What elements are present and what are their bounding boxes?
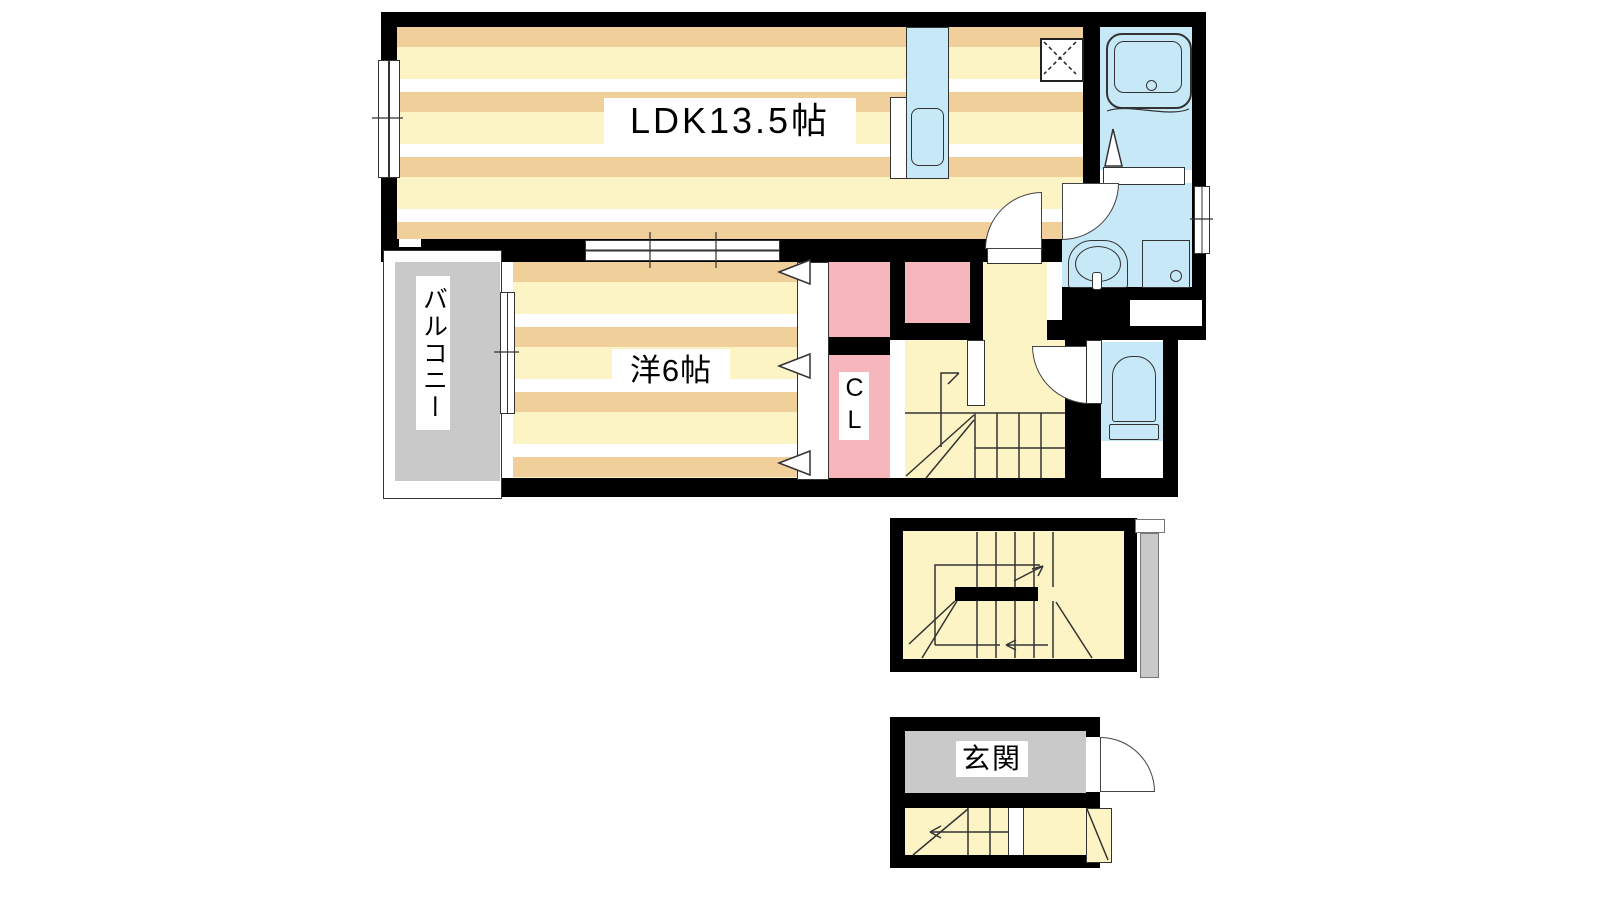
washer-drain — [1170, 270, 1182, 282]
front-door-gap — [1086, 737, 1100, 792]
front-door — [1100, 737, 1155, 792]
label-closet: CL — [839, 372, 869, 440]
wall — [1163, 330, 1178, 497]
sliding-window — [585, 240, 780, 261]
stair-divider — [955, 587, 1038, 601]
wall-vent — [399, 239, 421, 247]
kitchen-sink — [911, 108, 944, 166]
washbasin-tap — [1092, 272, 1102, 290]
wall — [827, 337, 890, 355]
step-extension — [1086, 808, 1112, 863]
closet-sliding-track — [797, 262, 829, 480]
gas-stove — [1040, 38, 1084, 82]
window-notch — [1130, 300, 1202, 326]
wall — [890, 323, 985, 340]
stair-opening — [967, 340, 985, 406]
label-western: 洋6帖 — [612, 349, 730, 391]
wall — [1083, 27, 1100, 183]
door-leaf — [1086, 340, 1102, 404]
window — [1194, 186, 1210, 254]
window — [500, 292, 515, 414]
floor-plan: LDK13.5帖 洋6帖 バルコニー CL 玄関 — [0, 0, 1600, 900]
label-ldk: LDK13.5帖 — [604, 98, 856, 144]
step-divider — [1008, 808, 1024, 855]
washer-pan — [1142, 240, 1190, 288]
window — [378, 60, 400, 178]
wall — [381, 12, 1205, 27]
entrance-steps — [905, 808, 1086, 855]
wall — [1065, 478, 1178, 497]
wall — [497, 478, 1065, 497]
closet-upper-left — [827, 262, 890, 337]
closet-upper-right — [905, 262, 970, 323]
label-balcony: バルコニー — [416, 276, 450, 430]
stairbox-step — [1135, 519, 1165, 533]
bathtub-drain — [1146, 80, 1157, 91]
toilet-bowl — [1112, 356, 1156, 422]
toilet-tank — [1109, 424, 1159, 440]
window-notch — [1101, 455, 1163, 478]
stairbox-side-strip — [1140, 533, 1159, 678]
label-entrance: 玄関 — [956, 741, 1028, 777]
